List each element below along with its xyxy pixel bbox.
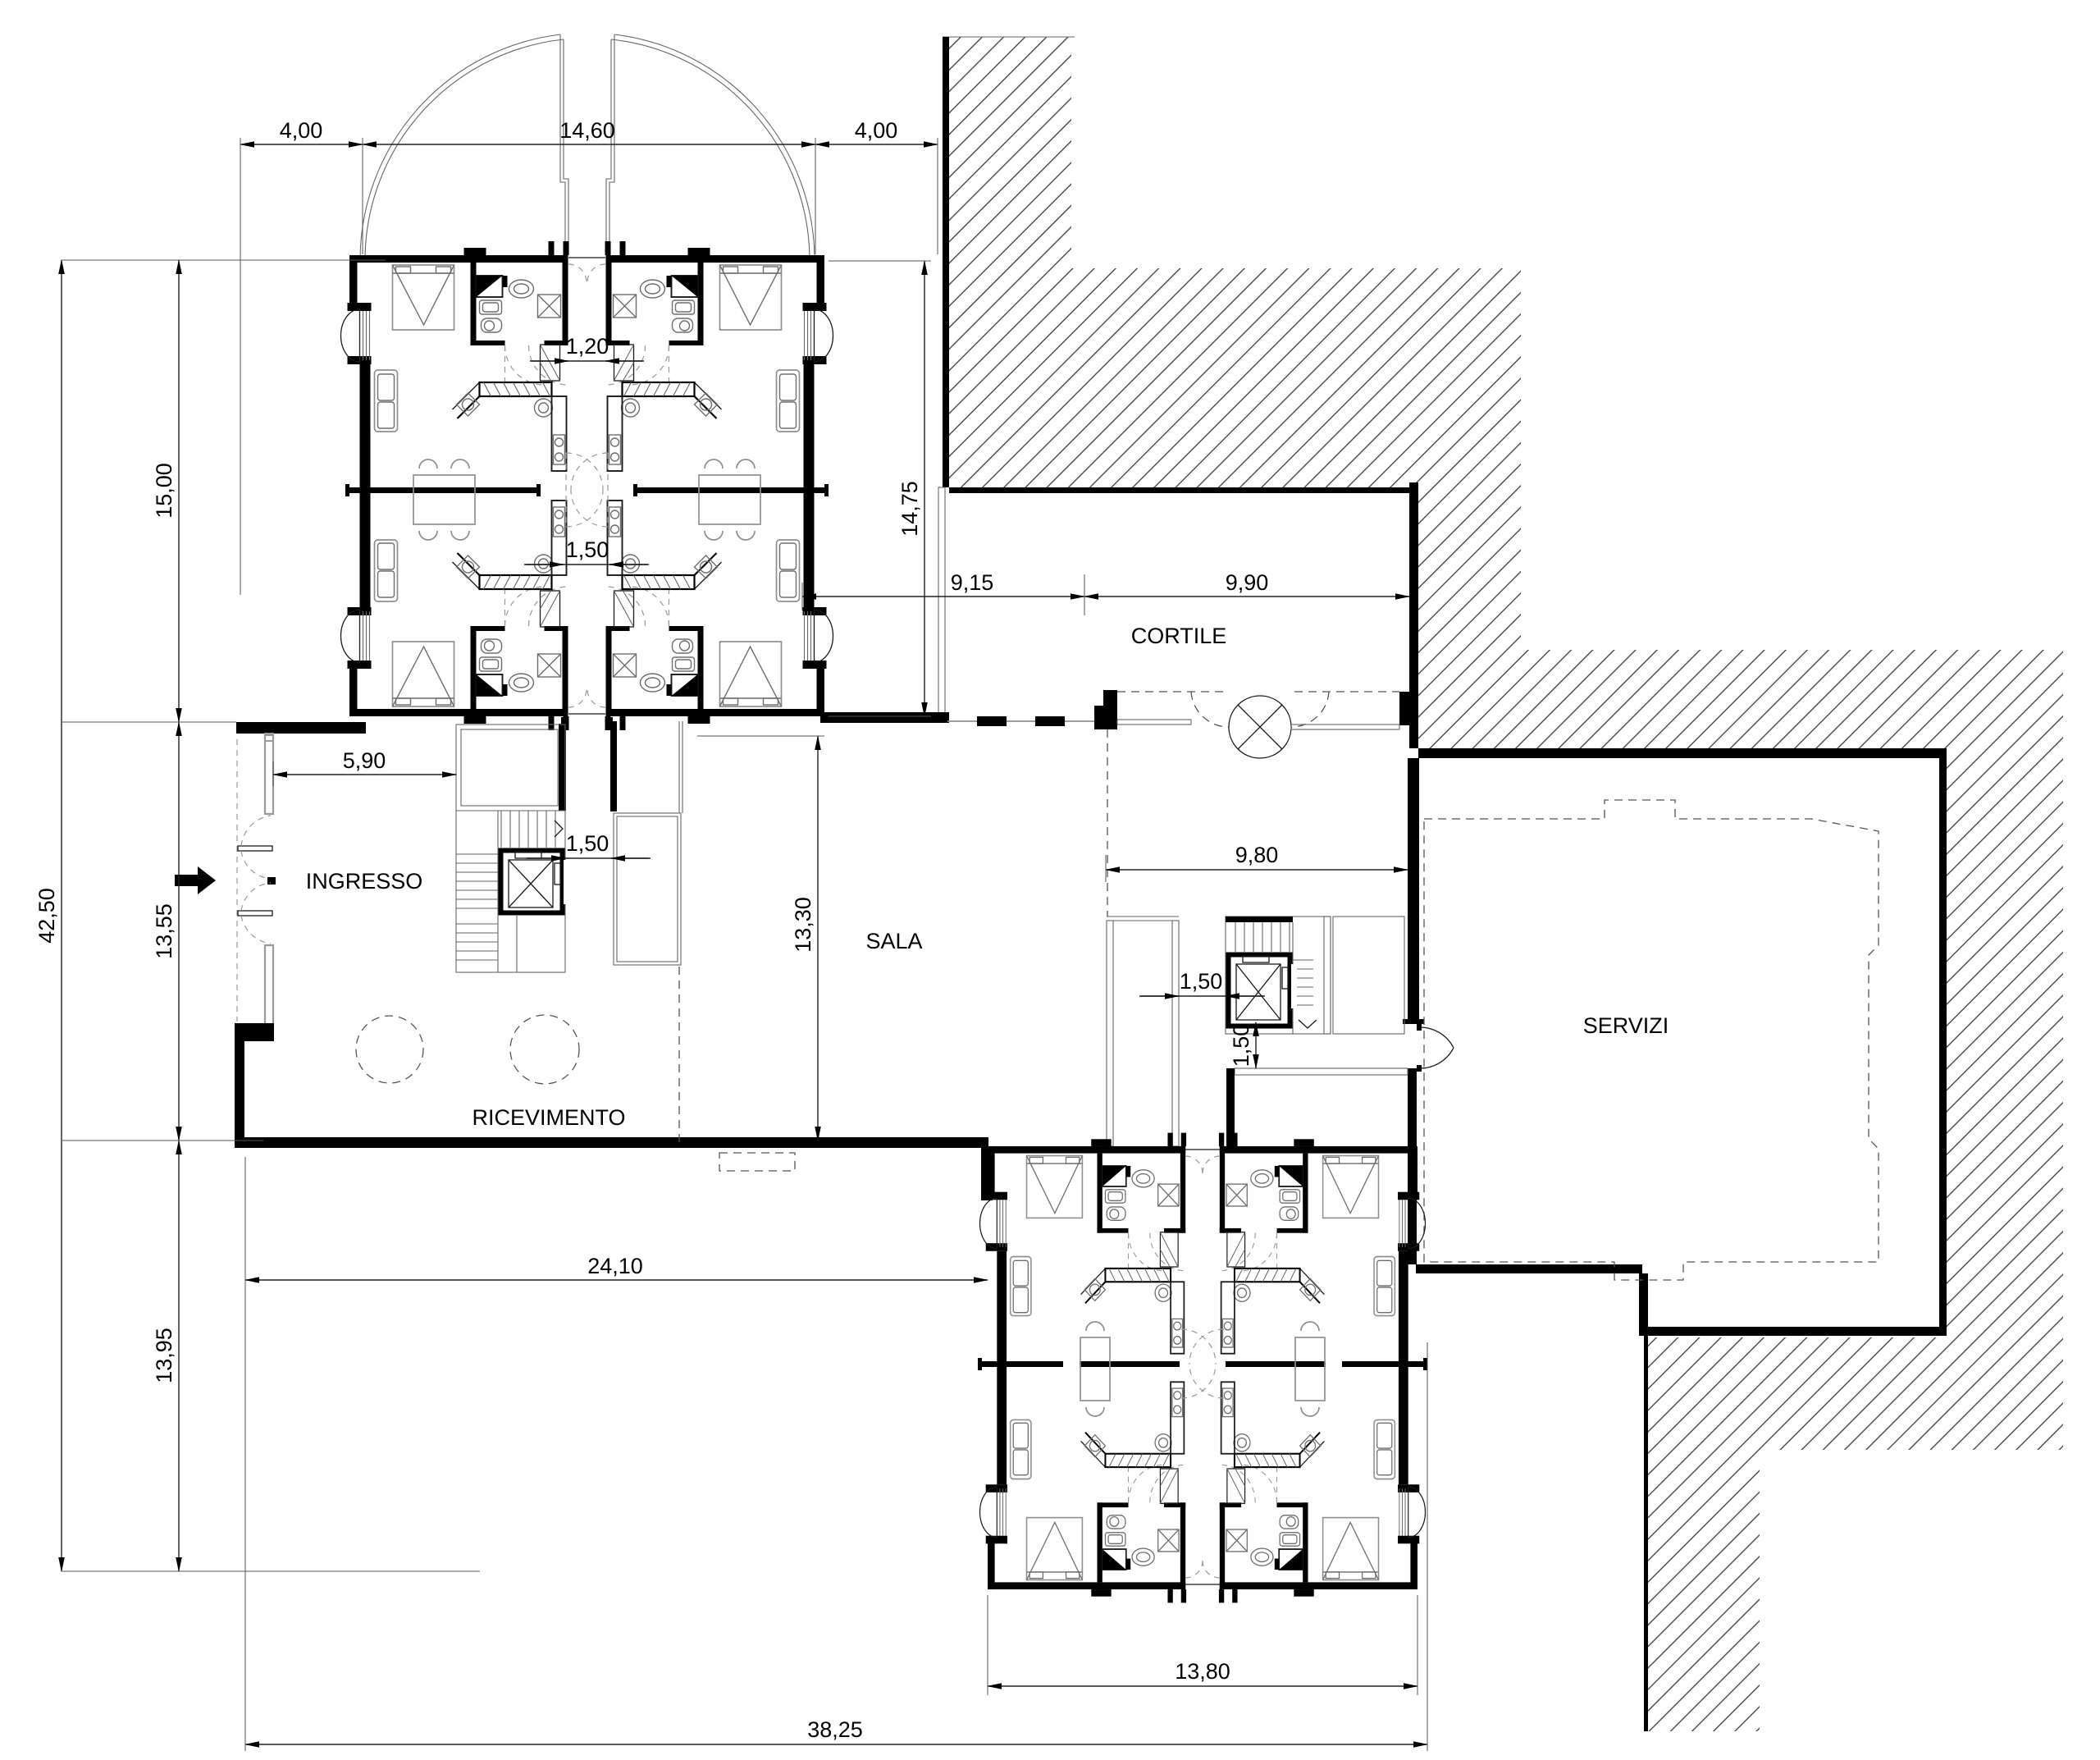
- svg-text:SALA: SALA: [865, 929, 922, 953]
- svg-text:13,30: 13,30: [791, 897, 815, 953]
- svg-text:CORTILE: CORTILE: [1131, 624, 1227, 648]
- svg-text:1,50: 1,50: [566, 831, 609, 856]
- svg-text:9,90: 9,90: [1226, 570, 1269, 595]
- svg-text:SERVIZI: SERVIZI: [1583, 1013, 1669, 1038]
- svg-text:13,55: 13,55: [152, 903, 176, 959]
- svg-text:13,95: 13,95: [152, 1328, 176, 1383]
- svg-text:15,00: 15,00: [152, 463, 176, 519]
- svg-text:4,00: 4,00: [855, 118, 898, 143]
- svg-text:38,25: 38,25: [807, 1717, 863, 1742]
- svg-text:4,00: 4,00: [280, 118, 323, 143]
- svg-text:9,15: 9,15: [951, 570, 994, 595]
- svg-text:RICEVIMENTO: RICEVIMENTO: [472, 1105, 625, 1130]
- svg-text:1,50: 1,50: [1229, 1024, 1253, 1067]
- svg-text:14,75: 14,75: [897, 481, 922, 537]
- svg-text:9,80: 9,80: [1235, 843, 1279, 867]
- svg-text:42,50: 42,50: [34, 888, 59, 944]
- svg-text:1,20: 1,20: [566, 334, 609, 359]
- svg-text:INGRESSO: INGRESSO: [306, 869, 423, 894]
- svg-text:24,10: 24,10: [587, 1254, 643, 1278]
- svg-text:13,80: 13,80: [1175, 1659, 1230, 1684]
- svg-text:1,50: 1,50: [1180, 969, 1223, 994]
- svg-text:14,60: 14,60: [559, 118, 615, 143]
- svg-text:5,90: 5,90: [343, 748, 386, 773]
- svg-text:1,50: 1,50: [566, 537, 609, 562]
